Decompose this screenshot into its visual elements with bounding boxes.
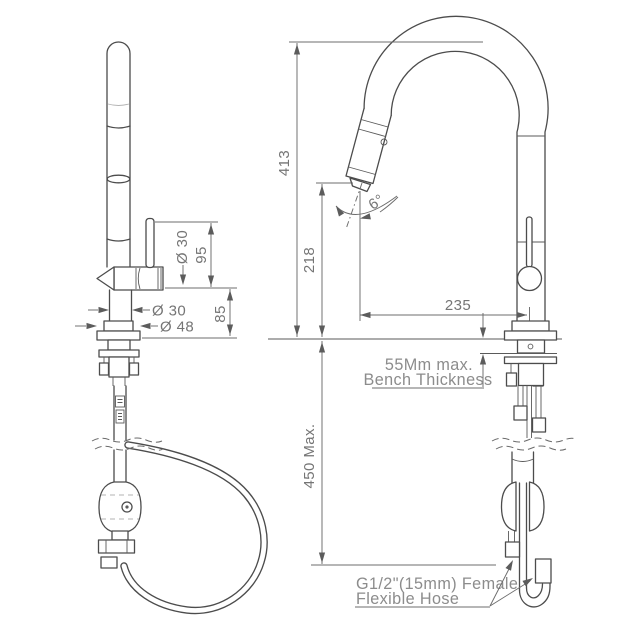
spout-column	[107, 42, 130, 267]
supply-tubes	[514, 386, 546, 439]
bench-thickness-label-line2: Bench Thickness	[364, 371, 493, 389]
hose-fitting-a	[506, 542, 520, 557]
hose-label-line2: Flexible Hose	[356, 590, 459, 608]
handle-lever-side	[146, 219, 154, 268]
handle-lever-front	[518, 217, 542, 291]
supply-pipe	[114, 386, 126, 440]
spray-tip	[97, 267, 114, 290]
dim-outlet-height: 218	[301, 247, 318, 273]
dim-total-height: 413	[276, 150, 293, 176]
spray-head	[346, 108, 391, 191]
dim-body-height: 85	[212, 305, 229, 323]
dim-base-diameter: Ø 48	[160, 319, 194, 336]
base-flange	[97, 321, 140, 340]
dimension-annotations: 413 218 450 Max. 235 6° 95 Ø 3	[75, 42, 535, 608]
dim-spout-reach: 235	[445, 297, 471, 314]
dim-handle-height: 95	[193, 246, 210, 264]
hose-weight	[99, 450, 142, 568]
flexible-hose-loop	[124, 445, 264, 610]
dim-hose-drop: 450 Max.	[301, 424, 318, 489]
dim-body-diameter: Ø 30	[152, 303, 186, 320]
right-view-faucet-front	[268, 16, 576, 607]
dim-handle-diameter: Ø 30	[174, 230, 191, 264]
dim-spray-angle: 6°	[365, 191, 387, 214]
mounting-hardware	[99, 340, 139, 386]
hex-nut	[99, 540, 135, 553]
hose-fitting-b	[536, 559, 552, 583]
break-lines-front	[492, 438, 576, 450]
technical-drawing-canvas: 413 218 450 Max. 235 6° 95 Ø 3	[0, 0, 640, 640]
